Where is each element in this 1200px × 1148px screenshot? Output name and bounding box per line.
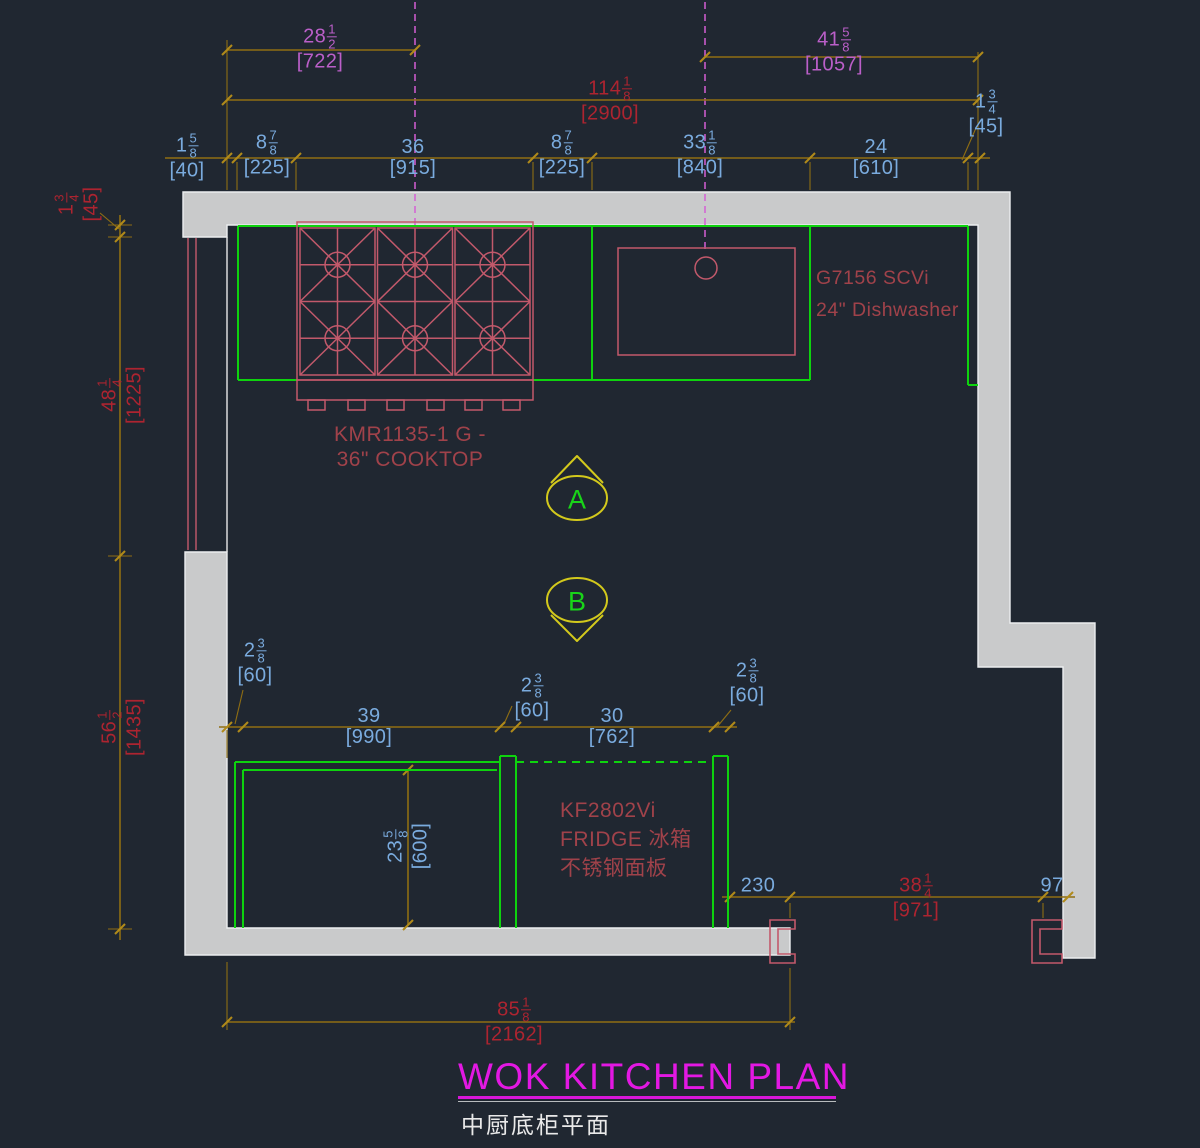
dishwasher-label: G7156 SCVi 24" Dishwasher [816,262,959,326]
dim-40: 158 [40] [170,131,205,180]
cooktop [297,222,533,410]
dim-2900: 11418 [2900] [581,74,639,123]
marker-a-triangle [551,456,603,483]
dim-60-a: 238 [60] [238,636,273,685]
dim-1435: 5612 [1435] [95,698,144,756]
dim-225-a: 878 [225] [244,128,290,177]
dim-762: 30 [762] [589,706,635,748]
dim-45-top: 134 [45] [969,87,1004,136]
dim-45-left: 134 [45] [52,187,101,222]
marker-b-triangle [551,615,603,641]
dim-60-b: 238 [60] [515,671,550,720]
page-title: WOK KITCHEN PLAN [458,1056,850,1098]
page-subtitle: 中厨底柜平面 [461,1106,611,1140]
door-jamb-right [1032,920,1062,963]
fridge-label: KF2802Vi FRIDGE 冰箱 不锈钢面板 [560,796,692,883]
wall-left-bottom [185,552,790,955]
marker-a-letter: A [568,485,586,516]
dim-722: 2812 [722] [297,22,343,71]
dim-1225: 4814 [1225] [95,366,144,424]
dim-600: 2358 [600] [381,823,430,869]
dim-840: 3318 [840] [677,128,723,177]
dim-60-c: 238 [60] [730,656,765,705]
wall-opening [188,237,227,552]
title-underline [458,1096,836,1099]
dim-97: 97 [1040,876,1063,896]
dim-230: 230 [741,876,776,896]
cooktop-label: KMR1135-1 G - 36" COOKTOP [334,422,486,472]
marker-b-letter: B [568,587,586,618]
dim-225-b: 878 [225] [539,128,585,177]
cad-canvas: 2812 [722] 4158 [1057] 11418 [2900] 158 … [0,0,1200,1148]
dim-990: 39 [990] [346,706,392,748]
dim-915: 36 [915] [390,137,436,179]
sink [618,248,795,355]
dim-610: 24 [610] [853,137,899,179]
door-jambs [770,920,1062,963]
dim-971: 3814 [971] [893,871,939,920]
dim-2162: 8518 [2162] [485,995,543,1044]
title-underline-thin [458,1101,836,1102]
dim-1057: 4158 [1057] [805,25,863,74]
